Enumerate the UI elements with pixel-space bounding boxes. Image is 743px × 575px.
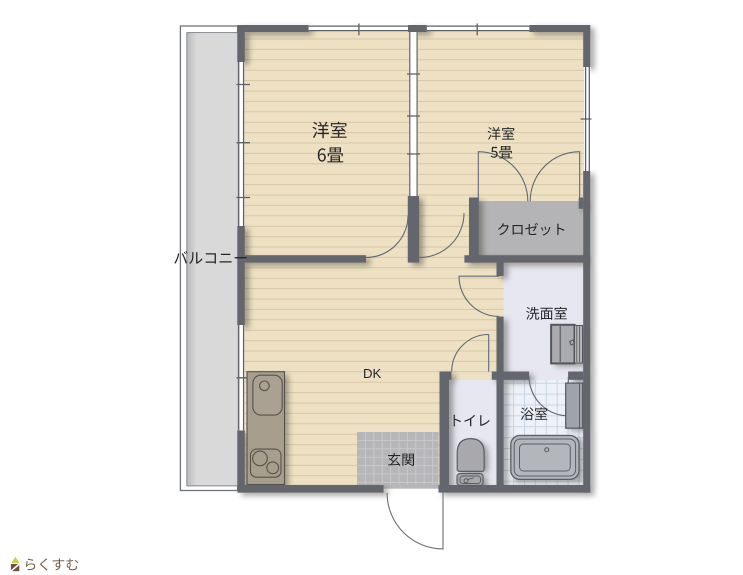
svg-text:DK: DK (363, 366, 382, 381)
